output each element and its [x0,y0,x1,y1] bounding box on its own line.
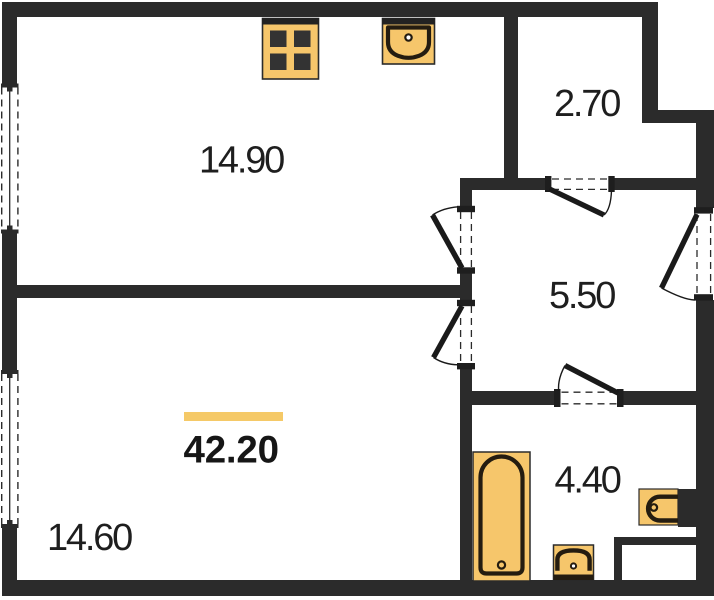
svg-text:14.90: 14.90 [199,140,284,182]
svg-text:4.40: 4.40 [555,460,621,502]
svg-text:5.50: 5.50 [549,275,615,317]
svg-text:42.20: 42.20 [184,429,279,472]
svg-text:14.60: 14.60 [47,517,132,559]
svg-text:2.70: 2.70 [554,83,620,125]
